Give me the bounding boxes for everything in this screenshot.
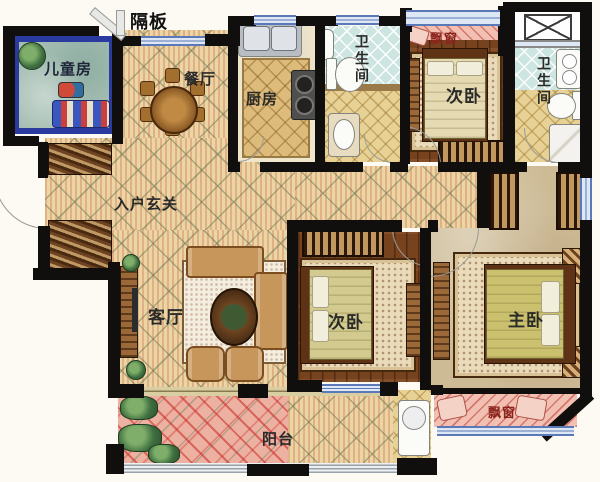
corridor-floor xyxy=(295,166,478,228)
bedroom-tr-label: 次卧 xyxy=(446,82,482,107)
entry-closet-lower xyxy=(48,220,112,270)
bedroom-mid-pillow xyxy=(312,310,329,342)
wall xyxy=(238,384,268,398)
sofa-right xyxy=(254,272,288,350)
wall xyxy=(380,382,398,396)
wall xyxy=(106,444,124,474)
wall xyxy=(397,458,437,475)
tv-icon xyxy=(132,288,138,332)
kids-toy xyxy=(58,82,84,98)
sofa-top xyxy=(186,246,264,278)
living-label: 客厅 xyxy=(148,303,184,328)
master-right-window xyxy=(580,178,592,220)
dining-window xyxy=(141,36,205,46)
wall xyxy=(580,46,592,178)
armchair xyxy=(225,346,264,382)
dining-chair xyxy=(165,68,180,83)
utility-basin-bowl xyxy=(402,406,426,430)
wall xyxy=(108,384,144,398)
balcony-plant-icon xyxy=(148,444,180,464)
dining-chair xyxy=(140,81,155,96)
elevator-shaft-icon xyxy=(524,14,572,41)
wall xyxy=(260,162,320,172)
master-tv-cabinet xyxy=(433,262,450,360)
wall xyxy=(390,162,408,172)
kids-crib xyxy=(52,100,110,128)
living-plant-icon xyxy=(126,360,146,380)
wall xyxy=(515,162,527,172)
wall xyxy=(420,228,431,390)
elevator-door xyxy=(515,40,580,48)
wall xyxy=(503,2,592,12)
bedroom-tr-pillow xyxy=(427,61,454,76)
wall xyxy=(247,464,309,476)
bedroom-mid-wardrobe xyxy=(302,228,384,257)
kitchen-window xyxy=(254,15,296,25)
coffee-table xyxy=(210,288,258,346)
bedroom-tr-pillow xyxy=(456,61,483,76)
bay-bottom-window xyxy=(437,426,574,436)
wall xyxy=(38,142,48,178)
floor-plan: 隔板 儿童房 餐厅 厨房 卫生间 卫生间 飘窗 次卧 入户玄关 客厅 次卧 主卧… xyxy=(0,0,600,482)
wall xyxy=(477,164,489,228)
kitchen-label: 厨房 xyxy=(246,88,278,109)
balcony-label: 阳台 xyxy=(262,428,294,449)
wall xyxy=(33,268,120,280)
kids-plant-icon xyxy=(18,42,46,70)
dining-table xyxy=(150,86,198,134)
bath1-sink-bowl xyxy=(333,119,355,150)
wall xyxy=(287,220,298,392)
foyer-label: 入户玄关 xyxy=(114,193,178,214)
bath1-window xyxy=(336,15,379,25)
wall xyxy=(558,162,592,172)
wall xyxy=(3,136,39,146)
bath2-sink-bowl xyxy=(562,54,577,69)
armchair xyxy=(186,346,225,382)
wall xyxy=(3,26,99,36)
kids-room-label: 儿童房 xyxy=(44,58,92,79)
bay-bottom-label: 飘窗 xyxy=(488,402,516,421)
living-plant-icon xyxy=(122,254,140,272)
entry-door-arc xyxy=(0,176,47,229)
bedroom-mid-dresser xyxy=(406,283,421,357)
stove-burner xyxy=(295,96,314,115)
wall xyxy=(228,40,238,172)
wall xyxy=(112,28,123,144)
kitchen-sink-basin xyxy=(243,26,270,51)
wall xyxy=(315,162,363,172)
balcony-floor-cream xyxy=(288,394,393,464)
wall xyxy=(400,24,410,164)
bedroom-mid-label: 次卧 xyxy=(328,308,364,333)
master-wardrobe-left xyxy=(489,172,519,230)
bay-top-label: 飘窗 xyxy=(430,28,458,47)
master-label: 主卧 xyxy=(508,306,544,331)
wall xyxy=(290,380,322,392)
bedroom-mid-pillow xyxy=(312,276,329,308)
wall xyxy=(580,2,592,52)
wall xyxy=(108,262,120,398)
bath2-label: 卫生间 xyxy=(534,56,554,107)
bath2-sink-bowl xyxy=(562,70,577,85)
wall xyxy=(123,36,143,46)
wall xyxy=(503,46,515,172)
wall xyxy=(431,388,580,394)
balcony-plant-icon xyxy=(120,396,158,420)
bath1-label: 卫生间 xyxy=(352,34,372,85)
bay-top-window xyxy=(406,10,500,26)
kitchen-sink-basin xyxy=(271,26,297,51)
partition-label: 隔板 xyxy=(130,8,168,34)
wall xyxy=(3,26,15,144)
wall xyxy=(580,220,592,395)
entry-closet-upper xyxy=(48,143,112,175)
stove-burner xyxy=(295,75,314,94)
wall xyxy=(503,2,515,46)
corner-duct xyxy=(116,10,125,36)
bedroom-mid-balcony-window xyxy=(322,384,380,393)
wall xyxy=(315,24,325,172)
dining-label: 餐厅 xyxy=(184,68,216,89)
wall xyxy=(290,220,402,232)
wall xyxy=(232,162,240,172)
